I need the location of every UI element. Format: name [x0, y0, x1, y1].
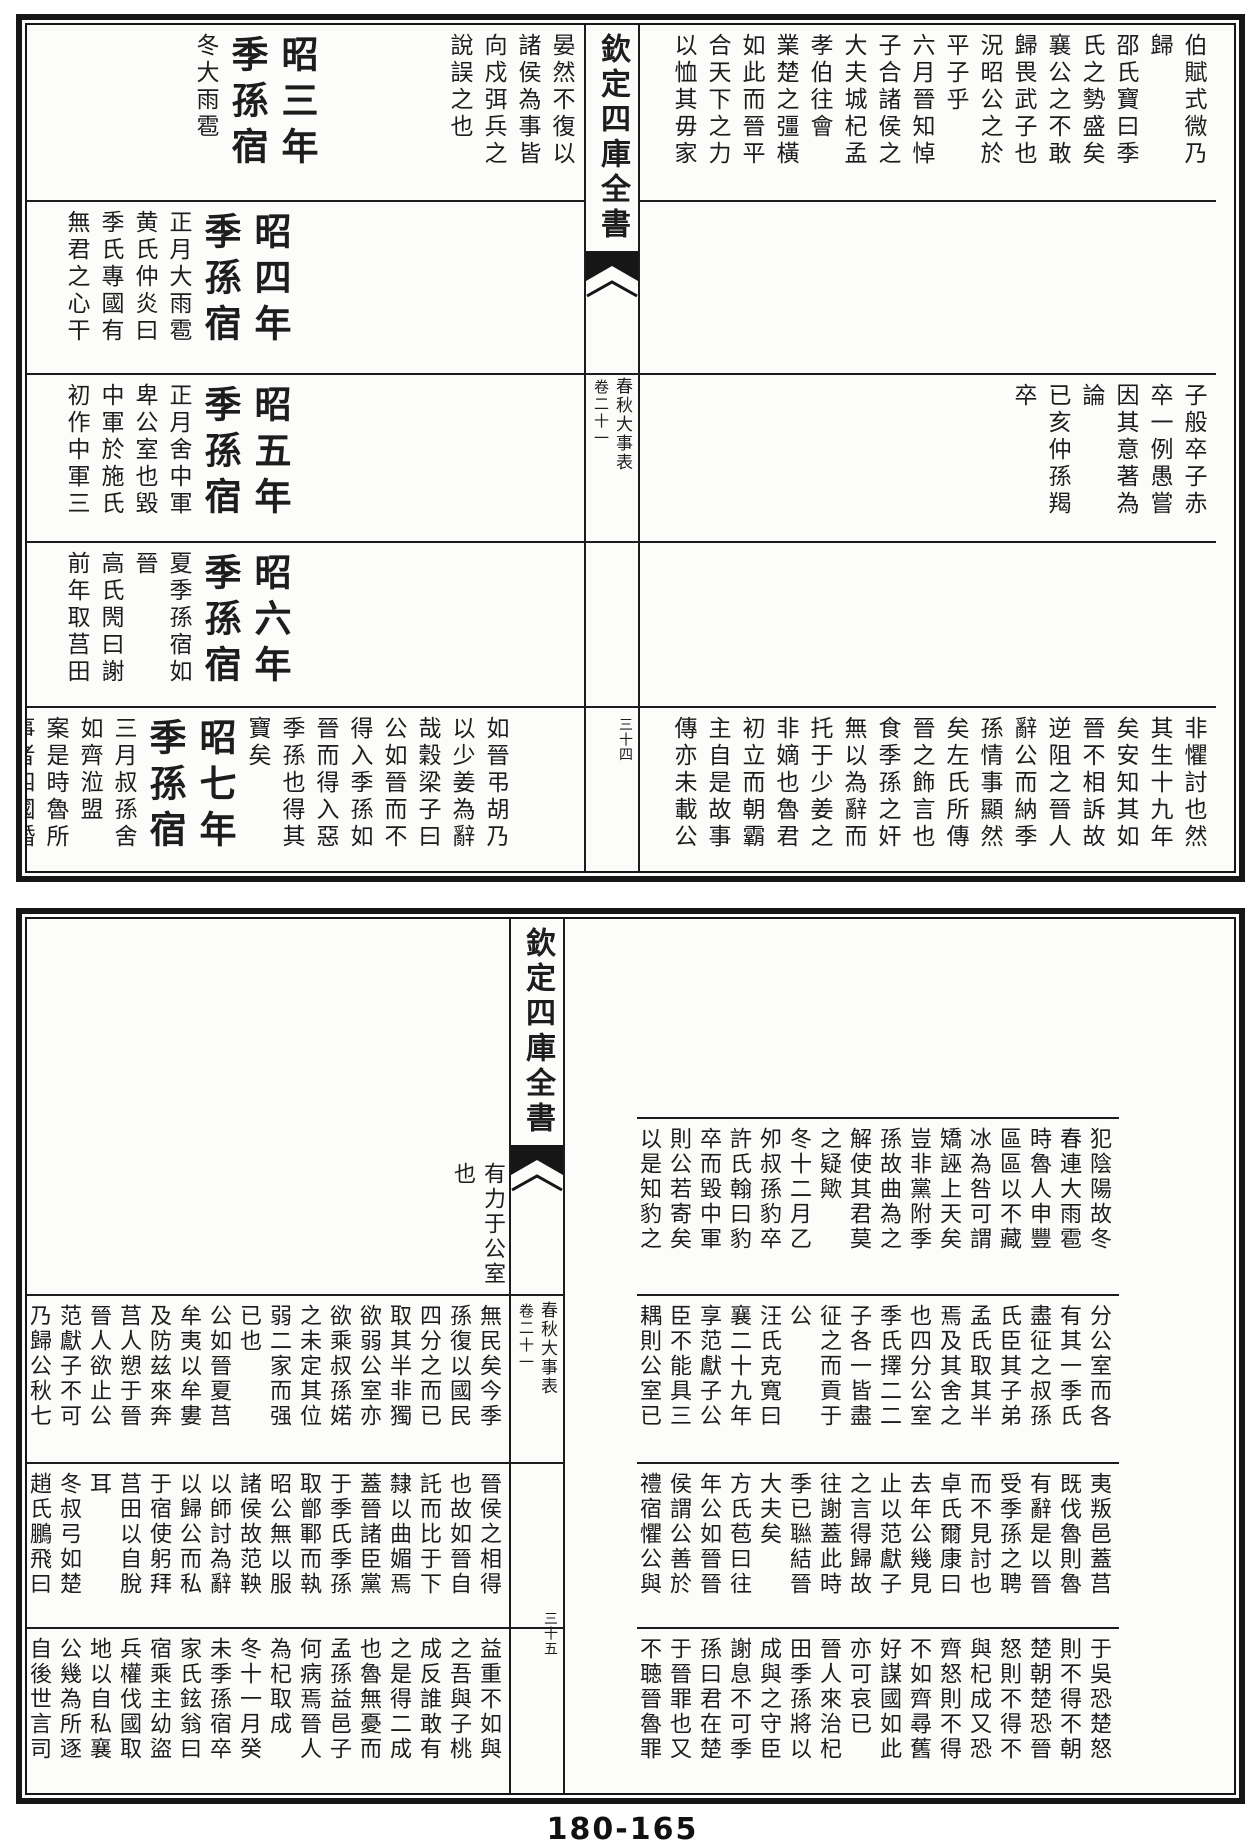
rule-line — [511, 1294, 563, 1296]
text-column: 未季孫宿卒 — [203, 1637, 233, 1762]
text-column: 區區以不藏 — [993, 1127, 1023, 1252]
text-column: 季氏擇二二 — [873, 1304, 903, 1429]
text-column: 田季孫將以 — [783, 1637, 813, 1762]
year-column: 季孫宿 — [195, 551, 245, 691]
text-column: 公如晉夏莒 — [203, 1304, 233, 1429]
running-title: 春秋大事表 卷二十一 — [586, 377, 638, 472]
text-column: 如齊涖盟 — [72, 716, 106, 824]
text-column: 晉之飾言也 — [904, 716, 938, 851]
text-column: 矣安知其如 — [1108, 716, 1142, 851]
text-column: 無民矣今季 — [473, 1304, 503, 1429]
text-column: 業楚之彊橫 — [768, 33, 802, 168]
text-column: 論 — [1074, 383, 1108, 410]
text-column: 黄氏仲炎曰 — [127, 210, 161, 345]
text-column: 諸侯故范鞅 — [233, 1472, 263, 1597]
text-column: 初作中軍三 — [59, 383, 93, 518]
text-column: 謝息不可季 — [723, 1637, 753, 1762]
folio-number: 三十四 — [617, 717, 633, 762]
text-column: 非懼討也然 — [1176, 716, 1210, 851]
text-column: 食季孫之奸 — [870, 716, 904, 851]
text-column: 已亥仲孫羯 — [1040, 383, 1074, 518]
text-column: 益重不如與 — [473, 1637, 503, 1762]
text-column: 合天下之力 — [700, 33, 734, 168]
volume-label: 卷二十一 — [516, 1303, 536, 1396]
text-column: 成與之守臣 — [753, 1637, 783, 1762]
text-column: 以是知豹之 — [637, 1127, 663, 1252]
text-column: 盡征之叔孫 — [1023, 1304, 1053, 1429]
text-column: 以恤其毋家 — [666, 33, 700, 168]
text-column: 卓氏爾康曰 — [933, 1472, 963, 1597]
text-column: 也四分公室 — [903, 1304, 933, 1429]
text-column: 六月晉知悼 — [904, 33, 938, 168]
table-row: 子般卒子赤卒一例愚嘗因其意著為論已亥仲孫羯卒 — [640, 375, 1216, 543]
text-column: 年公如晉晉 — [693, 1472, 723, 1597]
text-column: 欲弱公室亦 — [353, 1304, 383, 1429]
running-title: 春秋大事表 卷二十一 — [511, 1301, 563, 1396]
text-column: 傳亦未載公 — [666, 716, 700, 851]
text-column: 寶矣 — [240, 716, 274, 770]
text-column: 矯誣上天矣 — [933, 1127, 963, 1252]
rule-line — [586, 541, 638, 543]
text-column: 耦則公室已 — [637, 1304, 663, 1429]
text-column: 享范獻子公 — [693, 1304, 723, 1429]
text-column: 蓋晉諸臣黨 — [353, 1472, 383, 1597]
text-column: 大夫城杞孟 — [836, 33, 870, 168]
column-spacer — [295, 210, 578, 220]
text-column: 卒 — [1006, 383, 1040, 410]
text-column: 案是時魯所 — [38, 716, 72, 851]
table-row: 晏然不復以諸侯為事皆向戍弭兵之說誤之也昭三年季孫宿冬大雨雹 — [27, 25, 584, 202]
text-column: 襄公之不敢 — [1040, 33, 1074, 168]
text-column: 齊怒則不得 — [933, 1637, 963, 1762]
text-column: 卒一例愚嘗 — [1142, 383, 1176, 518]
text-column: 牟夷以牟婁 — [173, 1304, 203, 1429]
text-column: 犯陰陽故冬 — [1083, 1127, 1113, 1252]
text-column: 時魯人申豐 — [1023, 1127, 1053, 1252]
scanned-book-sheet: 晏然不復以諸侯為事皆向戍弭兵之說誤之也昭三年季孫宿冬大雨雹昭四年季孫宿正月大雨雹… — [0, 14, 1245, 1847]
text-column: 如晉弔胡乃 — [478, 716, 512, 851]
book-title: 春秋大事表 — [611, 377, 633, 472]
year-column: 昭六年 — [245, 551, 295, 691]
text-column: 而不見討也 — [963, 1472, 993, 1597]
page-frame: 晏然不復以諸侯為事皆向戍弭兵之說誤之也昭三年季孫宿冬大雨雹昭四年季孫宿正月大雨雹… — [25, 23, 1236, 873]
table-row: 伯賦式微乃歸邵氏寶曰季氏之勢盛矣襄公之不敢歸畏武子也況昭公之於平子乎六月晉知悼子… — [640, 25, 1216, 202]
text-column: 莒田以自脫 — [113, 1472, 143, 1597]
column-spacer — [512, 716, 578, 726]
text-column: 夷叛邑蓋莒 — [1083, 1472, 1113, 1597]
text-column: 哉穀梁子曰 — [410, 716, 444, 851]
book-title: 春秋大事表 — [536, 1301, 558, 1396]
page-right-half: 伯賦式微乃歸邵氏寶曰季氏之勢盛矣襄公之不敢歸畏武子也況昭公之於平子乎六月晉知悼子… — [640, 25, 1216, 871]
text-column: 之未定其位 — [293, 1304, 323, 1429]
year-column: 昭三年 — [272, 33, 322, 173]
text-column: 昭公無以服 — [263, 1472, 293, 1597]
text-column: 矣左氏所傳 — [938, 716, 972, 851]
text-column: 于吳恐楚怒 — [1083, 1637, 1113, 1762]
center-column: 欽定四庫全書 春秋大事表 卷二十一 三十五 — [509, 919, 565, 1793]
text-column: 夘叔孫豹卒 — [753, 1127, 783, 1252]
table-row: 昭五年季孫宿正月舍中軍卑公室也毀中軍於施氏初作中軍三 — [27, 375, 584, 543]
table-row: 分公室而各有其一季氏盡征之叔孫氏臣其子弟孟氏取其半焉及其舍之也四分公室季氏擇二二… — [637, 1296, 1119, 1464]
text-column: 臣不能具三 — [663, 1304, 693, 1429]
year-column: 昭五年 — [245, 383, 295, 523]
text-column: 孫復以國民 — [443, 1304, 473, 1429]
page-frame: 有力于公室 也 無民矣今季孫復以國民四分之而已取其半非獨欲弱公室亦欲乘叔孫婼之未… — [25, 917, 1236, 1795]
book-page-bottom: 有力于公室 也 無民矣今季孫復以國民四分之而已取其半非獨欲弱公室亦欲乘叔孫婼之未… — [16, 908, 1245, 1804]
text-column: 子般卒子赤 — [1176, 383, 1210, 518]
text-column: 邵氏寶曰季 — [1108, 33, 1142, 168]
text-column: 以歸公而私 — [173, 1472, 203, 1597]
text-column: 怒則不得不 — [993, 1637, 1023, 1762]
text-column: 亦可哀已 — [843, 1637, 873, 1737]
volume-label: 卷二十一 — [591, 379, 611, 472]
table-row — [637, 919, 1119, 1119]
text-column: 前年取莒田 — [59, 551, 93, 686]
text-column: 正月舍中軍 — [161, 383, 195, 518]
text-column: 大夫矣 — [753, 1472, 783, 1547]
text-column: 也故如晉自 — [443, 1472, 473, 1597]
rule-line — [511, 1462, 563, 1464]
text-column: 楚朝楚恐晉 — [1023, 1637, 1053, 1762]
text-column: 冬叔弓如楚 — [53, 1472, 83, 1597]
table-row: 晉侯之相得也故如晉自託而比于下隸以曲媚焉蓋晉諸臣黨于季氏季孫取鄫鄆而執昭公無以服… — [27, 1464, 509, 1629]
text-column: 為杞取成 — [263, 1637, 293, 1737]
text-column: 季孫也得其 — [274, 716, 308, 851]
text-column: 孫故曲為之 — [873, 1127, 903, 1252]
column-spacer — [295, 383, 578, 393]
text-column: 辭公而納季 — [1006, 716, 1040, 851]
column-spacer — [295, 551, 578, 561]
text-column: 既伐魯則魯 — [1053, 1472, 1083, 1597]
text-column: 冬十二月乙 — [783, 1127, 813, 1252]
year-column: 昭四年 — [245, 210, 295, 350]
page-right-half: 犯陰陽故冬春連大雨雹時魯人申豐區區以不藏冰為咎可謂矯誣上天矣豈非黨附季孫故曲為之… — [565, 919, 1119, 1793]
text-column: 范獻子不可 — [53, 1304, 83, 1429]
book-page-top: 晏然不復以諸侯為事皆向戍弭兵之說誤之也昭三年季孫宿冬大雨雹昭四年季孫宿正月大雨雹… — [16, 14, 1245, 882]
table-row: 益重不如與之吾與子桃成反誰敢有之是得二成也魯無憂而孟孫益邑子何病焉晉人為杞取成冬… — [27, 1629, 509, 1793]
text-column: 伯賦式微乃 — [1176, 33, 1210, 168]
text-column: 晉侯之相得 — [473, 1472, 503, 1597]
text-column: 無君之心干 — [59, 210, 93, 345]
text-column: 正月大雨雹 — [161, 210, 195, 345]
text-column: 之是得二成 — [383, 1637, 413, 1762]
year-column: 季孫宿 — [195, 383, 245, 523]
text-column: 不聴晉魯罪 — [637, 1637, 663, 1762]
text-column: 與杞成又恐 — [963, 1637, 993, 1762]
text-column: 成反誰敢有 — [413, 1637, 443, 1762]
text-column: 耳 — [83, 1472, 113, 1497]
text-column: 則不得不朝 — [1053, 1637, 1083, 1762]
table-row: 夷叛邑蓋莒既伐魯則魯有辭是以晉受季孫之聘而不見討也卓氏爾康曰去年公幾見止以范獻子… — [637, 1464, 1119, 1629]
text-column: 往謝蓋此時 — [813, 1472, 843, 1597]
text-column: 歸畏武子也 — [1006, 33, 1040, 168]
text-column: 春連大雨雹 — [1053, 1127, 1083, 1252]
text-column: 無以為辭而 — [836, 716, 870, 851]
year-column: 昭七年 — [190, 716, 240, 856]
text-column: 逆阻之晉人 — [1040, 716, 1074, 851]
text-column: 因其意著為 — [1108, 383, 1142, 518]
siku-title: 欽定四庫全書 — [586, 33, 638, 243]
text-column: 弱二家而强 — [263, 1304, 293, 1429]
text-column: 季已聮結晉 — [783, 1472, 813, 1597]
text-column: 地以自私襄 — [83, 1637, 113, 1762]
text-column: 許氏翰曰豹 — [723, 1127, 753, 1252]
text-column: 以少姜為辭 — [444, 716, 478, 851]
text-column: 三月叔孫舍 — [106, 716, 140, 851]
text-column: 孝伯往會 — [802, 33, 836, 141]
text-column: 冬大雨雹 — [188, 33, 222, 141]
table-row: 如晉弔胡乃以少姜為辭哉穀梁子曰公如晉而不得入季孫如晉而得入惡季孫也得其寶矣昭七年… — [27, 708, 584, 871]
year-column: 季孫宿 — [140, 716, 190, 856]
text-column: 兵權伐國取 — [113, 1637, 143, 1762]
text-column: 晏然不復以 — [544, 33, 578, 168]
text-column: 氏之勢盛矣 — [1074, 33, 1108, 168]
text-column: 侯謂公善於 — [663, 1472, 693, 1597]
rule-line — [511, 1627, 563, 1629]
carryover-columns: 有力于公室 也 — [447, 1162, 507, 1287]
text-column: 取其半非獨 — [383, 1304, 413, 1429]
text-column: 止以范獻子 — [873, 1472, 903, 1597]
text-column: 公如晉而不 — [376, 716, 410, 851]
text-column: 孟孫益邑子 — [323, 1637, 353, 1762]
text-column: 卒而毀中軍 — [693, 1127, 723, 1252]
fishtail-icon — [586, 251, 638, 303]
text-column: 卑公室也毀 — [127, 383, 161, 518]
text-column: 方氏苞曰往 — [723, 1472, 753, 1597]
text-column: 初立而朝霸 — [734, 716, 768, 851]
text-column: 焉及其舍之 — [933, 1304, 963, 1429]
text-column: 于宿使躬拜 — [143, 1472, 173, 1597]
text-column: 也 — [447, 1162, 477, 1287]
rule-line — [586, 706, 638, 708]
text-column: 氏臣其子弟 — [993, 1304, 1023, 1429]
text-column: 晉不相訴故 — [1074, 716, 1108, 851]
rule-line — [586, 373, 638, 375]
text-column: 趙氏鵬飛曰 — [27, 1472, 53, 1597]
table-row: 于吳恐楚怒則不得不朝楚朝楚恐晉怒則不得不與杞成又恐齊怒則不得不如齊尋舊好謀國如此… — [637, 1629, 1119, 1793]
text-column: 孫情事顯然 — [972, 716, 1006, 851]
table-row: 無民矣今季孫復以國民四分之而已取其半非獨欲弱公室亦欲乘叔孫婼之未定其位弱二家而强… — [27, 1296, 509, 1464]
text-column: 分公室而各 — [1083, 1304, 1113, 1429]
text-column: 非嫡也魯君 — [768, 716, 802, 851]
text-column: 諸侯為事皆 — [510, 33, 544, 168]
text-column: 何病焉晉人 — [293, 1637, 323, 1762]
page-left-half: 晏然不復以諸侯為事皆向戍弭兵之說誤之也昭三年季孫宿冬大雨雹昭四年季孫宿正月大雨雹… — [27, 25, 584, 871]
text-column: 高氏閌曰謝 — [93, 551, 127, 686]
text-column: 于晉罪也又 — [663, 1637, 693, 1762]
text-column: 中軍於施氏 — [93, 383, 127, 518]
text-column: 去年公幾見 — [903, 1472, 933, 1597]
text-column: 有力于公室 — [477, 1162, 507, 1287]
text-column: 孫曰君在楚 — [693, 1637, 723, 1762]
text-column: 平子乎 — [938, 33, 972, 114]
text-column: 于季氏季孫 — [323, 1472, 353, 1597]
text-column: 托于少姜之 — [802, 716, 836, 851]
text-column: 子合諸侯之 — [870, 33, 904, 168]
text-column: 也魯無憂而 — [353, 1637, 383, 1762]
siku-title: 欽定四庫全書 — [511, 927, 563, 1137]
text-column: 季氏專國有 — [93, 210, 127, 345]
text-column: 晉人來治杞 — [813, 1637, 843, 1762]
text-column: 如此而晉平 — [734, 33, 768, 168]
text-column: 孟氏取其半 — [963, 1304, 993, 1429]
table-row: 非懼討也然其生十九年矣安知其如晉不相訴故逆阻之晉人辭公而納季孫情事顯然矣左氏所傳… — [640, 708, 1216, 871]
folio-number: 三十五 — [542, 1611, 558, 1656]
text-column: 及防兹來奔 — [143, 1304, 173, 1429]
text-column: 取鄫鄆而執 — [293, 1472, 323, 1597]
text-column: 事者四國婚 — [27, 716, 38, 851]
text-column: 有辭是以晉 — [1023, 1472, 1053, 1597]
table-row: 犯陰陽故冬春連大雨雹時魯人申豐區區以不藏冰為咎可謂矯誣上天矣豈非黨附季孫故曲為之… — [637, 1119, 1119, 1296]
text-column: 夏季孫宿如 — [161, 551, 195, 686]
text-column: 自後世言司 — [27, 1637, 53, 1762]
table-row: 昭四年季孫宿正月大雨雹黄氏仲炎曰季氏專國有無君之心干 — [27, 202, 584, 375]
text-column: 其生十九年 — [1142, 716, 1176, 851]
page-left-half: 有力于公室 也 無民矣今季孫復以國民四分之而已取其半非獨欲弱公室亦欲乘叔孫婼之未… — [27, 919, 509, 1793]
text-column: 莒人愬于晉 — [113, 1304, 143, 1429]
fishtail-icon — [511, 1145, 563, 1197]
text-column: 豈非黨附季 — [903, 1127, 933, 1252]
text-column: 以師討為辭 — [203, 1472, 233, 1597]
text-column: 公幾為所逐 — [53, 1637, 83, 1762]
text-column: 欲乘叔孫婼 — [323, 1304, 353, 1429]
table-row — [27, 919, 509, 1296]
text-column: 受季孫之聘 — [993, 1472, 1023, 1597]
text-column: 宿乘主幼盜 — [143, 1637, 173, 1762]
text-column: 之言得歸故 — [843, 1472, 873, 1597]
text-column: 家氏鉉翁曰 — [173, 1637, 203, 1762]
text-column: 說誤之也 — [442, 33, 476, 141]
text-column: 解使其君莫 — [843, 1127, 873, 1252]
page-number: 180-165 — [0, 1812, 1245, 1847]
table-row — [640, 543, 1216, 708]
text-column: 公 — [783, 1304, 813, 1329]
text-column: 不如齊尋舊 — [903, 1637, 933, 1762]
text-column: 襄二十九年 — [723, 1304, 753, 1429]
text-column: 之吾與子桃 — [443, 1637, 473, 1762]
center-column: 欽定四庫全書 春秋大事表 卷二十一 三十四 — [584, 25, 640, 871]
text-column: 汪氏克寬曰 — [753, 1304, 783, 1429]
text-column: 四分之而已 — [413, 1304, 443, 1429]
text-column: 晉 — [127, 551, 161, 578]
text-column: 隸以曲媚焉 — [383, 1472, 413, 1597]
text-column: 冬十一月癸 — [233, 1637, 263, 1762]
text-column: 向戍弭兵之 — [476, 33, 510, 168]
table-row: 昭六年季孫宿夏季孫宿如晉高氏閌曰謝前年取莒田 — [27, 543, 584, 708]
text-column: 乃歸公秋七 — [27, 1304, 53, 1429]
text-column: 好謀國如此 — [873, 1637, 903, 1762]
text-column: 已也 — [233, 1304, 263, 1354]
text-column: 有其一季氏 — [1053, 1304, 1083, 1429]
text-column: 冰為咎可謂 — [963, 1127, 993, 1252]
text-column: 歸 — [1142, 33, 1176, 60]
text-column: 況昭公之於 — [972, 33, 1006, 168]
table-row — [640, 202, 1216, 375]
text-column: 之疑歟 — [813, 1127, 843, 1202]
text-column: 得入季孫如 — [342, 716, 376, 851]
text-column: 晉人欲止公 — [83, 1304, 113, 1429]
text-column: 子各一皆盡 — [843, 1304, 873, 1429]
text-column: 主自是故事 — [700, 716, 734, 851]
year-column: 季孫宿 — [195, 210, 245, 350]
text-column: 則公若寄矣 — [663, 1127, 693, 1252]
column-spacer — [322, 33, 442, 43]
text-column: 託而比于下 — [413, 1472, 443, 1597]
text-column: 禮宿懼公與 — [637, 1472, 663, 1597]
text-column: 晉而得入惡 — [308, 716, 342, 851]
year-column: 季孫宿 — [222, 33, 272, 173]
text-column: 征之而貢于 — [813, 1304, 843, 1429]
